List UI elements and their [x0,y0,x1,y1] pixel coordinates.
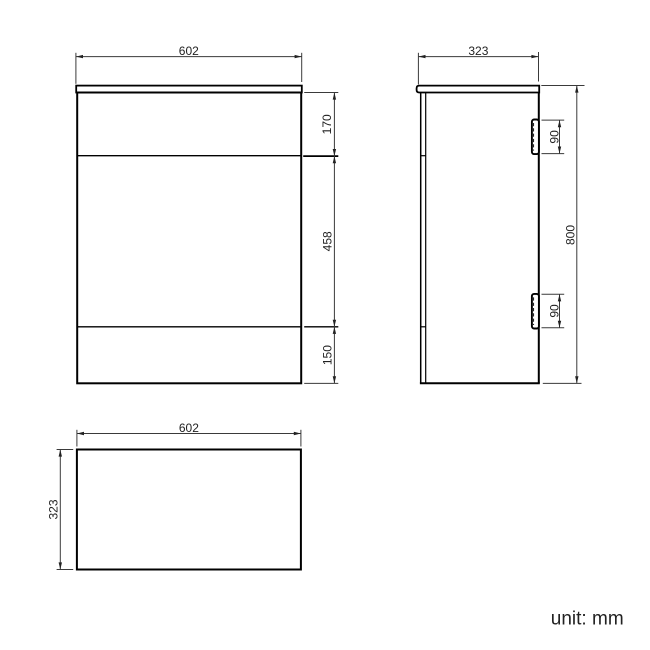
svg-text:150: 150 [320,345,334,365]
svg-text:323: 323 [47,499,61,519]
svg-text:90: 90 [548,304,562,318]
svg-text:602: 602 [179,44,199,58]
svg-text:458: 458 [320,231,334,251]
svg-text:323: 323 [468,44,488,58]
svg-text:170: 170 [320,114,334,134]
svg-text:90: 90 [548,130,562,144]
svg-text:unit: mm: unit: mm [551,609,624,630]
svg-text:800: 800 [564,225,578,245]
svg-text:602: 602 [179,421,199,435]
